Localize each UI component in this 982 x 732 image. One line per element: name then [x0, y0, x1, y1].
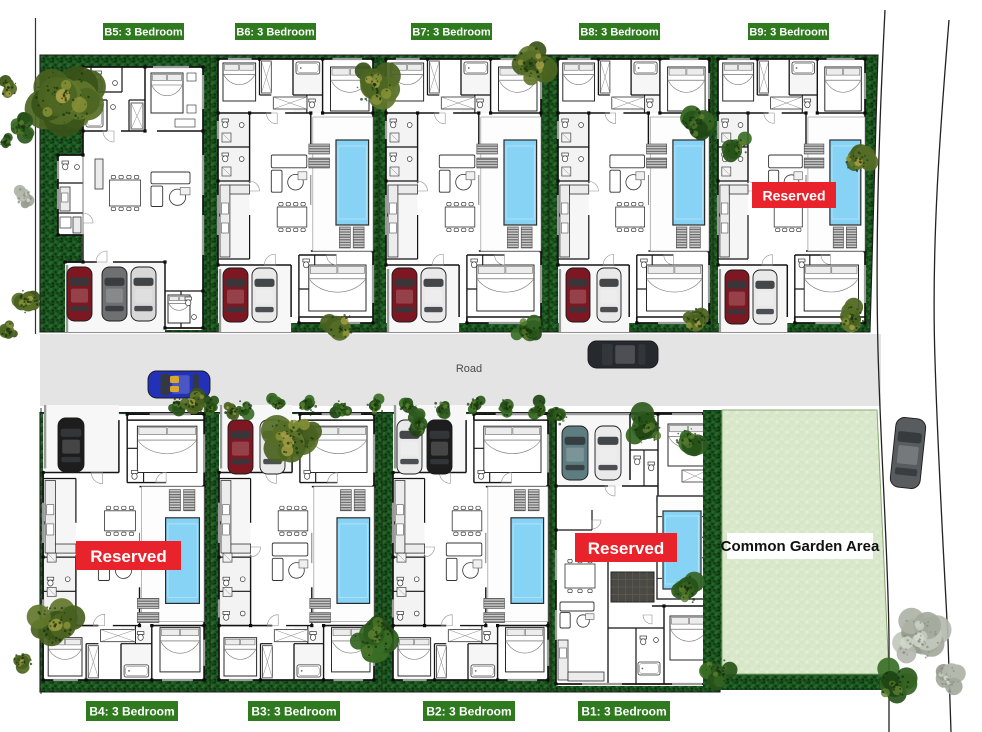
svg-text:B8: 3 Bedroom: B8: 3 Bedroom [580, 27, 658, 39]
svg-text:Reserved: Reserved [90, 547, 167, 566]
svg-text:B9: 3 Bedroom: B9: 3 Bedroom [749, 27, 827, 39]
svg-text:Reserved: Reserved [588, 539, 665, 558]
svg-text:B4: 3 Bedroom: B4: 3 Bedroom [89, 705, 174, 719]
svg-text:Reserved: Reserved [762, 188, 825, 204]
svg-text:B1: 3 Bedroom: B1: 3 Bedroom [581, 705, 666, 719]
svg-text:B2: 3 Bedroom: B2: 3 Bedroom [426, 705, 511, 719]
svg-text:Road: Road [456, 363, 482, 375]
svg-text:B7: 3 Bedroom: B7: 3 Bedroom [412, 27, 490, 39]
svg-text:B5: 3 Bedroom: B5: 3 Bedroom [104, 27, 182, 39]
svg-text:Common Garden Area: Common Garden Area [721, 538, 880, 555]
svg-text:B6: 3 Bedroom: B6: 3 Bedroom [236, 27, 314, 39]
svg-text:B3: 3 Bedroom: B3: 3 Bedroom [251, 705, 336, 719]
